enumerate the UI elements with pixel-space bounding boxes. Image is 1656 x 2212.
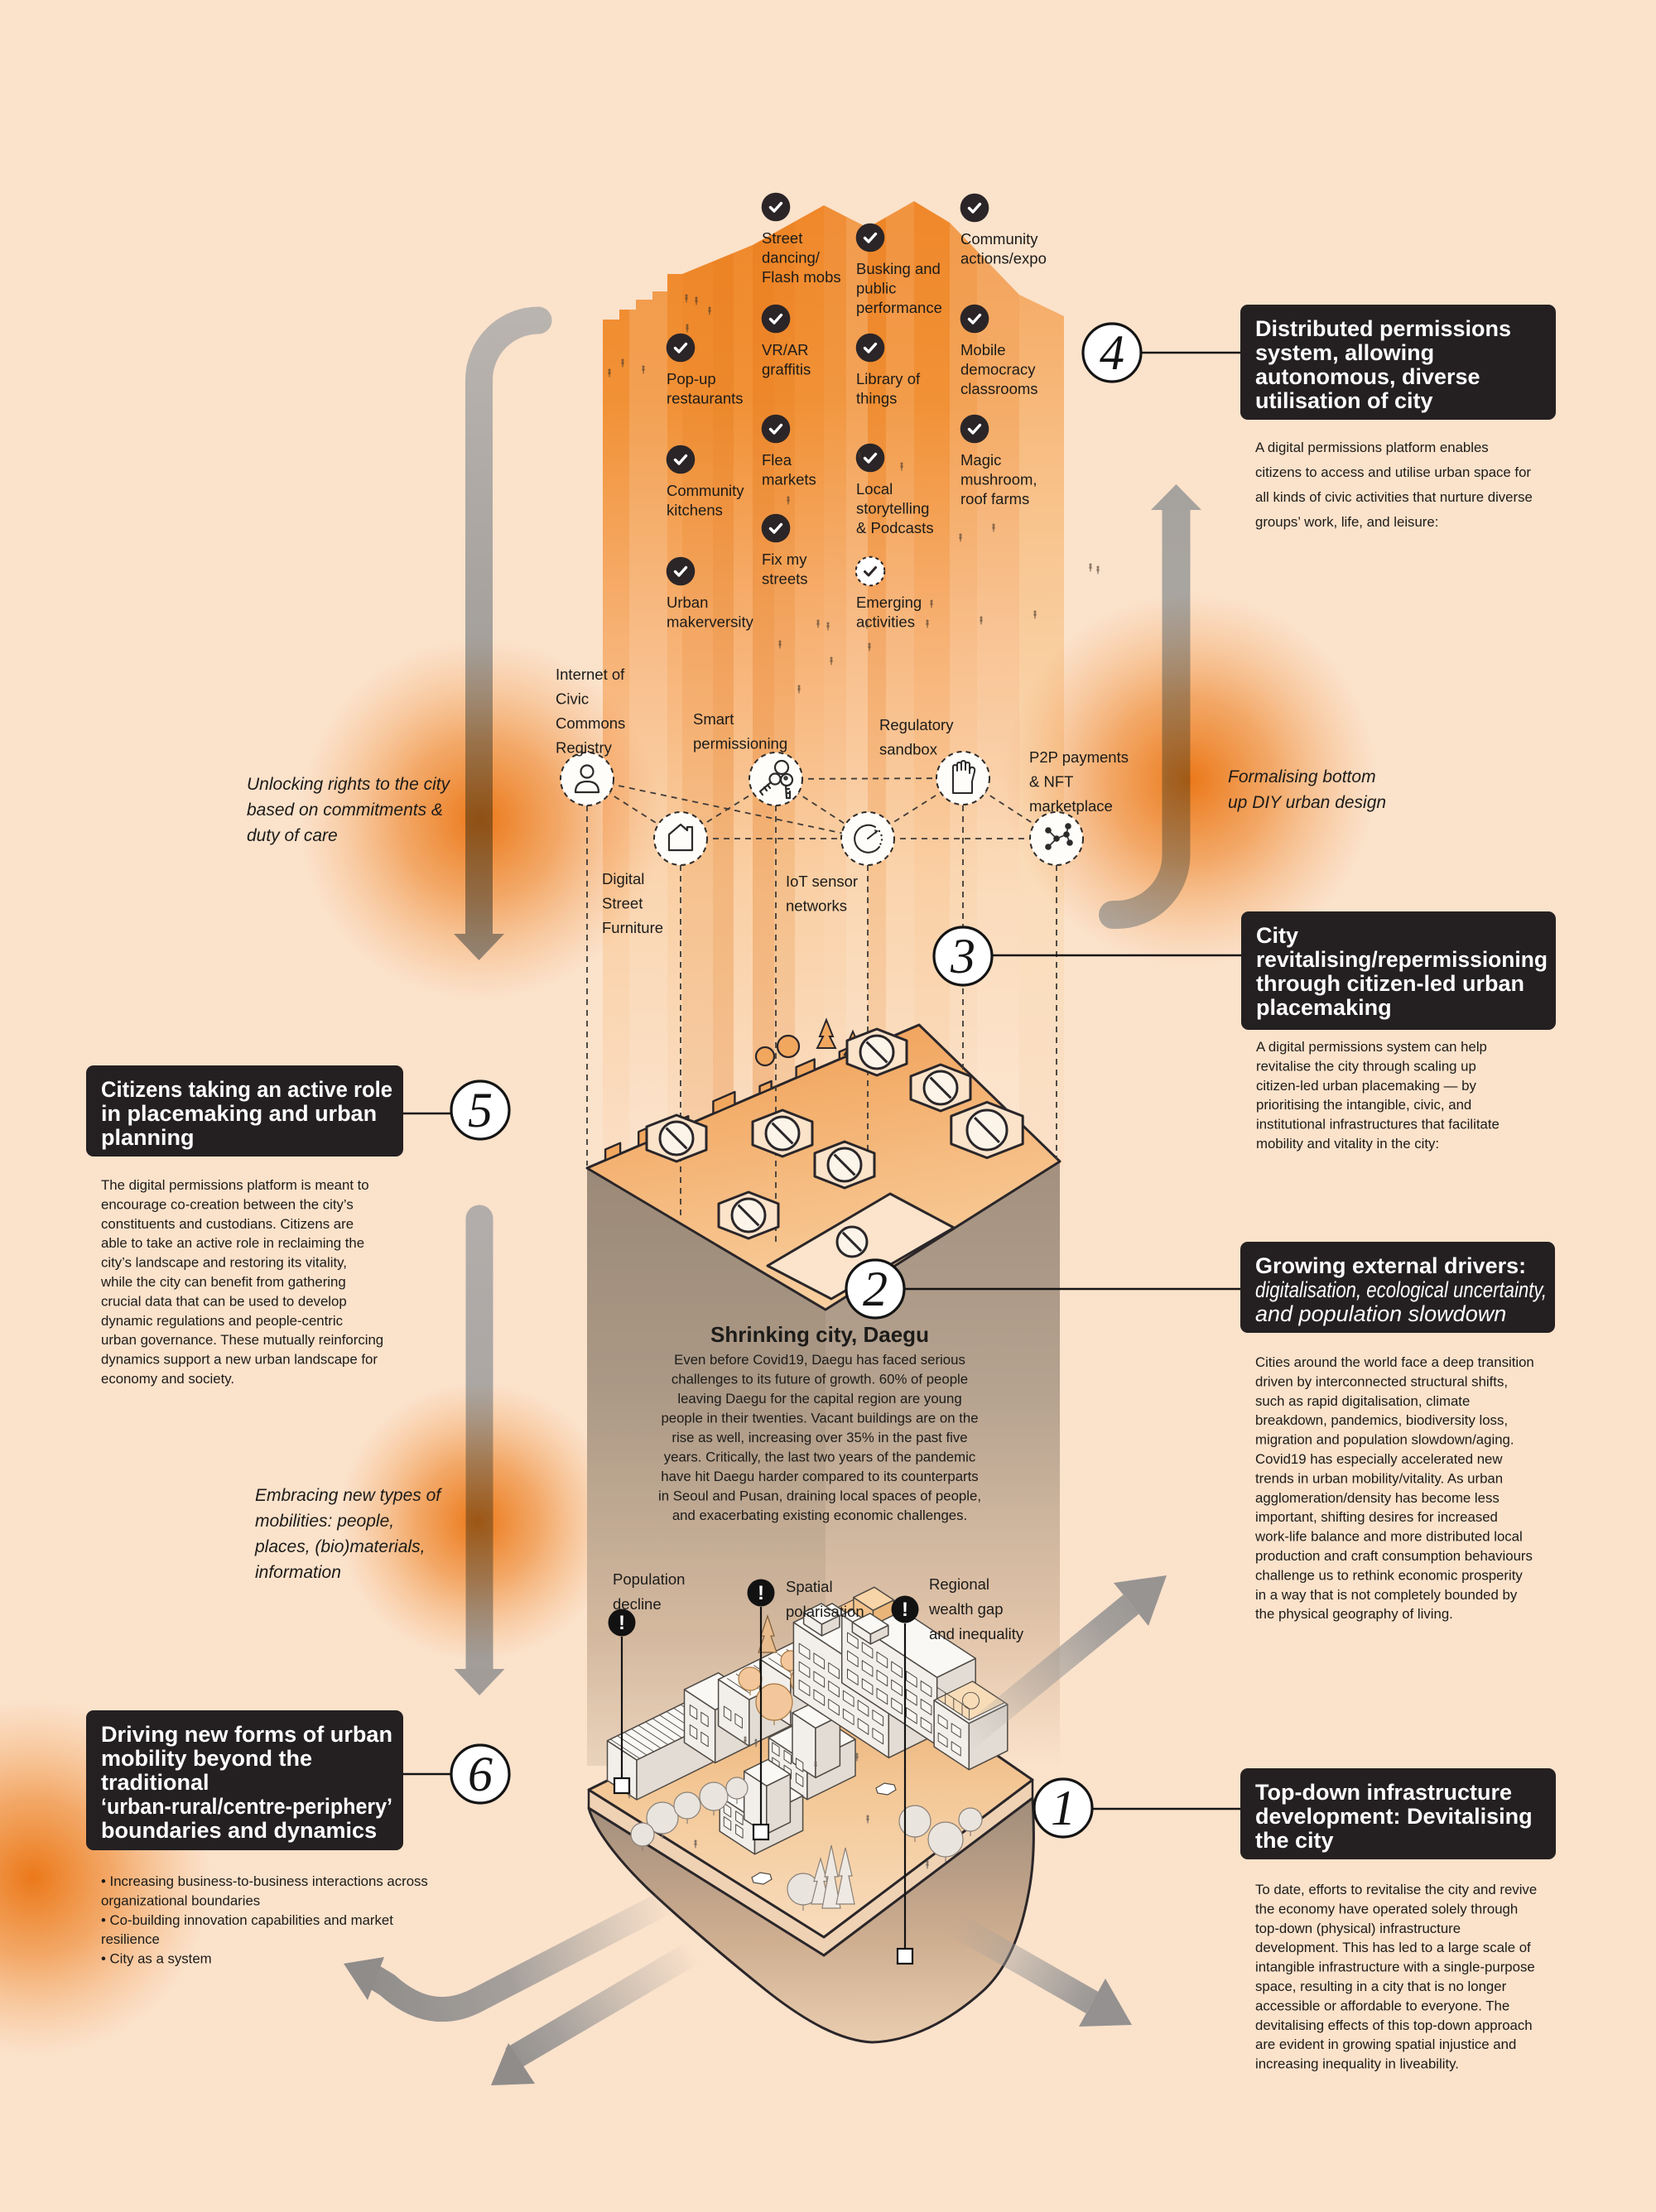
svg-text:actions/expo: actions/expo [960, 250, 1047, 267]
svg-text:mobility beyond the: mobility beyond the [101, 1746, 312, 1771]
svg-text:accessible or affordable to ev: accessible or affordable to everyone. Th… [1255, 1998, 1509, 2013]
svg-text:A digital permissions platform: A digital permissions platform enables [1255, 440, 1489, 455]
svg-text:2: 2 [863, 1262, 888, 1316]
svg-text:democracy: democracy [960, 361, 1036, 378]
svg-text:City: City [1256, 923, 1298, 948]
svg-text:5: 5 [468, 1083, 493, 1137]
svg-text:Population: Population [613, 1570, 685, 1588]
svg-text:the city: the city [1255, 1828, 1334, 1853]
svg-text:classrooms: classrooms [960, 380, 1038, 397]
svg-text:Distributed permissions: Distributed permissions [1255, 316, 1511, 341]
svg-text:years. Critically, the last tw: years. Critically, the last two years of… [664, 1450, 976, 1465]
svg-text:Community: Community [667, 482, 744, 499]
svg-text:and inequality: and inequality [929, 1625, 1024, 1642]
svg-text:Top-down infrastructure: Top-down infrastructure [1255, 1780, 1512, 1805]
svg-text:information: information [255, 1563, 341, 1582]
svg-text:challenge us to rethink econom: challenge us to rethink economic prosper… [1255, 1567, 1523, 1583]
svg-text:Local: Local [856, 480, 893, 498]
svg-text:top-down (physical) infrastruc: top-down (physical) infrastructure [1255, 1921, 1461, 1936]
svg-text:4: 4 [1100, 325, 1124, 380]
svg-text:all kinds of civic activities: all kinds of civic activities that nurtu… [1255, 489, 1533, 505]
svg-text:Internet of: Internet of [556, 666, 625, 683]
svg-text:Spatial: Spatial [786, 1578, 833, 1595]
svg-text:based on commitments &: based on commitments & [247, 801, 443, 820]
svg-text:Community: Community [960, 230, 1038, 248]
svg-text:1: 1 [1051, 1781, 1076, 1835]
svg-text:autonomous, diverse: autonomous, diverse [1255, 364, 1480, 389]
svg-text:devitalising effects of this t: devitalising effects of this top-down ap… [1255, 2017, 1533, 2033]
svg-text:duty of care: duty of care [247, 826, 338, 845]
svg-text:P2P payments: P2P payments [1029, 748, 1129, 766]
svg-text:!: ! [902, 1599, 908, 1621]
svg-text:able to take an active role in: able to take an active role in reclaimin… [101, 1235, 364, 1251]
svg-text:system, allowing: system, allowing [1255, 340, 1434, 365]
svg-text:constituents and custodians. C: constituents and custodians. Citizens ar… [101, 1216, 354, 1232]
svg-text:crucial data that can be used: crucial data that can be used to develop [101, 1293, 347, 1309]
svg-text:To date, efforts to revitalise: To date, efforts to revitalise the city … [1255, 1882, 1537, 1897]
svg-text:permissioning: permissioning [693, 735, 787, 753]
svg-text:agglomeration/density has beco: agglomeration/density has become less [1255, 1490, 1500, 1506]
svg-text:leaving Daegu for the capital: leaving Daegu for the capital region are… [677, 1391, 961, 1407]
svg-text:graffitis: graffitis [762, 361, 811, 378]
svg-text:Shrinking city, Daegu: Shrinking city, Daegu [710, 1322, 929, 1347]
svg-text:and population slowdown: and population slowdown [1255, 1301, 1506, 1326]
svg-text:• City as a system: • City as a system [101, 1951, 212, 1967]
svg-text:Smart: Smart [693, 710, 734, 728]
svg-text:Driving new forms of urban: Driving new forms of urban [101, 1722, 392, 1747]
svg-text:The digital permissions platfo: The digital permissions platform is mean… [101, 1177, 369, 1193]
svg-text:networks: networks [786, 897, 847, 915]
svg-text:prioritising the intangible, c: prioritising the intangible, civic, and [1256, 1097, 1471, 1113]
svg-text:Civic: Civic [556, 690, 589, 708]
svg-text:6: 6 [468, 1747, 493, 1801]
svg-text:polarisation: polarisation [786, 1603, 864, 1620]
svg-text:encourage co-creation between: encourage co-creation between the city’s [101, 1196, 354, 1212]
svg-text:dynamic regulations and people: dynamic regulations and people-centric [101, 1313, 343, 1329]
svg-text:urban governance. These mutual: urban governance. These mutually reinfor… [101, 1332, 383, 1348]
svg-text:Digital: Digital [602, 870, 644, 887]
svg-text:dynamics support a new urban l: dynamics support a new urban landscape f… [101, 1352, 378, 1368]
svg-text:Formalising bottom: Formalising bottom [1228, 767, 1376, 786]
svg-text:the physical geography of livi: the physical geography of living. [1255, 1606, 1453, 1622]
svg-text:up DIY urban design: up DIY urban design [1228, 793, 1386, 812]
svg-text:economy and society.: economy and society. [101, 1371, 234, 1387]
svg-text:in a way that is not completel: in a way that is not completely bounded … [1255, 1587, 1518, 1603]
svg-text:Fix my: Fix my [762, 551, 807, 568]
svg-text:Unlocking rights to the city: Unlocking rights to the city [247, 775, 451, 794]
svg-text:mobilities: people,: mobilities: people, [255, 1512, 394, 1531]
svg-text:groups’ work, life, and leisur: groups’ work, life, and leisure: [1255, 514, 1438, 530]
svg-text:things: things [856, 390, 897, 407]
svg-text:Cities around the world face a: Cities around the world face a deep tran… [1255, 1354, 1534, 1370]
svg-text:IoT sensor: IoT sensor [786, 873, 858, 890]
svg-text:production and craft consumpti: production and craft consumption behavio… [1255, 1548, 1533, 1564]
svg-text:digitalisation, ecological unc: digitalisation, ecological uncertainty, [1255, 1277, 1547, 1302]
svg-text:Flea: Flea [762, 451, 792, 469]
svg-text:Commons: Commons [556, 714, 625, 732]
svg-text:in placemaking and urban: in placemaking and urban [101, 1101, 377, 1126]
svg-text:Pop-up: Pop-up [667, 370, 716, 387]
svg-text:storytelling: storytelling [856, 500, 929, 517]
svg-text:mobility and vitality in the c: mobility and vitality in the city: [1256, 1136, 1439, 1152]
svg-text:development: Devitalising: development: Devitalising [1255, 1804, 1533, 1829]
svg-text:placemaking: placemaking [1256, 995, 1392, 1020]
svg-text:important, shifting desires fo: important, shifting desires for increase… [1255, 1509, 1498, 1525]
svg-text:Regional: Regional [929, 1575, 989, 1593]
svg-text:restaurants: restaurants [667, 390, 744, 407]
svg-text:city’s landscape and restoring: city’s landscape and restoring its vital… [101, 1255, 347, 1271]
svg-text:while the city can benefit fro: while the city can benefit from gatherin… [100, 1274, 346, 1290]
svg-text:citizens to access and utilise: citizens to access and utilise urban spa… [1255, 464, 1531, 480]
svg-text:public: public [856, 280, 896, 297]
svg-text:trends in urban mobility/vital: trends in urban mobility/vitality. As ur… [1255, 1470, 1503, 1486]
svg-text:places, (bio)materials,: places, (bio)materials, [254, 1537, 425, 1556]
svg-text:marketplace: marketplace [1029, 797, 1113, 815]
svg-text:development. This has led to a: development. This has led to a large sca… [1255, 1940, 1531, 1955]
svg-text:increasing inequality in livea: increasing inequality in liveability. [1255, 2056, 1459, 2072]
svg-text:VR/AR: VR/AR [762, 341, 809, 358]
svg-text:challenges to its future of gr: challenges to its future of growth. 60% … [672, 1372, 968, 1387]
svg-text:boundaries and dynamics: boundaries and dynamics [101, 1818, 377, 1843]
svg-text:sandbox: sandbox [879, 741, 938, 758]
svg-text:Emerging: Emerging [856, 594, 922, 611]
svg-text:markets: markets [762, 471, 816, 488]
svg-text:dancing/: dancing/ [762, 249, 821, 267]
svg-text:‘urban-rural/centre-periphery’: ‘urban-rural/centre-periphery’ [101, 1794, 392, 1819]
svg-text:traditional: traditional [101, 1770, 209, 1795]
svg-text:through citizen-led urban: through citizen-led urban [1256, 971, 1524, 996]
svg-text:makerversity: makerversity [667, 613, 754, 631]
svg-text:Street: Street [602, 895, 643, 912]
svg-text:Busking and: Busking and [856, 260, 941, 277]
svg-text:Urban: Urban [667, 594, 708, 611]
svg-text:& Podcasts: & Podcasts [856, 519, 934, 536]
svg-text:Mobile: Mobile [960, 341, 1006, 358]
svg-text:• Co-building innovation capab: • Co-building innovation capabilities an… [101, 1912, 393, 1928]
svg-text:in Seoul and Pusan, draining l: in Seoul and Pusan, draining local space… [658, 1488, 981, 1504]
svg-text:intangible infrastructure with: intangible infrastructure with a single-… [1255, 1960, 1535, 1975]
svg-text:!: ! [619, 1612, 625, 1634]
svg-text:space, resulting in a city tha: space, resulting in a city that is no lo… [1255, 1979, 1507, 1994]
svg-text:are evident in growing spatial: are evident in growing spatial injustice… [1255, 2036, 1516, 2052]
svg-text:Covid19 has especially acceler: Covid19 has especially accelerated new [1255, 1451, 1503, 1467]
svg-text:kitchens: kitchens [667, 502, 723, 519]
svg-text:performance: performance [856, 299, 942, 316]
svg-text:• Increasing business-to-busin: • Increasing business-to-business intera… [101, 1873, 428, 1889]
svg-text:Magic: Magic [960, 451, 1001, 469]
svg-text:A digital permissions system c: A digital permissions system can help [1256, 1039, 1487, 1055]
svg-text:resilience: resilience [101, 1931, 160, 1947]
svg-text:utilisation of city: utilisation of city [1255, 388, 1433, 413]
svg-text:work-life balance and more dis: work-life balance and more distributed l… [1254, 1529, 1523, 1545]
svg-text:rise as well, increasing over: rise as well, increasing over 35% in the… [672, 1430, 967, 1445]
svg-text:institutional infrastructures: institutional infrastructures that facil… [1256, 1117, 1500, 1132]
svg-text:planning: planning [101, 1125, 194, 1150]
svg-text:such as rapid digitalisation,: such as rapid digitalisation, climate [1255, 1393, 1470, 1409]
svg-text:streets: streets [762, 570, 808, 588]
svg-text:Furniture: Furniture [602, 919, 663, 936]
svg-text:Embracing new types of: Embracing new types of [255, 1486, 442, 1505]
svg-text:Street: Street [762, 229, 802, 247]
svg-text:organizational boundaries: organizational boundaries [101, 1892, 260, 1908]
svg-text:!: ! [758, 1582, 764, 1604]
svg-text:Growing external drivers:: Growing external drivers: [1255, 1253, 1526, 1278]
svg-text:revitalising/repermissioning: revitalising/repermissioning [1256, 947, 1548, 972]
svg-text:citizen-led urban placemaking: citizen-led urban placemaking — by [1256, 1078, 1476, 1094]
svg-text:people in their twenties. Vaca: people in their twenties. Vacant buildin… [661, 1411, 978, 1426]
svg-text:driven by interconnected struc: driven by interconnected structural shif… [1255, 1373, 1508, 1389]
svg-text:activities: activities [856, 613, 915, 631]
svg-text:Library of: Library of [856, 370, 921, 387]
svg-text:Citizens taking an active role: Citizens taking an active role [101, 1077, 392, 1102]
svg-text:have hit Daegu harder compared: have hit Daegu harder compared to its co… [661, 1469, 978, 1484]
svg-text:the economy have operated sole: the economy have operated solely through [1255, 1901, 1518, 1916]
svg-text:3: 3 [950, 929, 975, 983]
svg-text:Registry: Registry [556, 739, 613, 757]
svg-text:revitalise the city through sc: revitalise the city through scaling up [1256, 1058, 1476, 1074]
svg-text:Flash mobs: Flash mobs [762, 268, 841, 286]
svg-text:roof farms: roof farms [960, 490, 1029, 507]
svg-text:Even before Covid19, Daegu has: Even before Covid19, Daegu has faced ser… [674, 1352, 965, 1368]
svg-text:breakdown, pandemics, biodiver: breakdown, pandemics, biodiversity loss, [1255, 1412, 1508, 1428]
svg-text:& NFT: & NFT [1029, 773, 1073, 791]
svg-text:mushroom,: mushroom, [960, 471, 1037, 488]
svg-text:wealth gap: wealth gap [928, 1600, 1003, 1618]
svg-text:migration and population slowd: migration and population slowdown/aging. [1255, 1432, 1514, 1448]
svg-text:and exacerbating existing econ: and exacerbating existing economic chall… [672, 1508, 967, 1523]
svg-text:Regulatory: Regulatory [879, 716, 954, 733]
